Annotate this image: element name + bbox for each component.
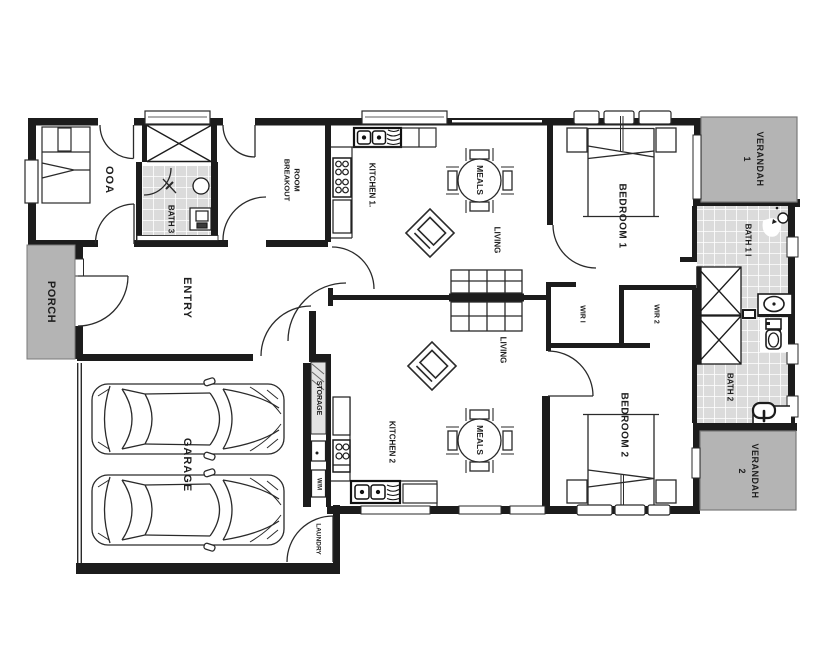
svg-text:2: 2 — [737, 468, 747, 473]
svg-text:BATH 3: BATH 3 — [167, 205, 176, 234]
svg-text:1: 1 — [742, 156, 752, 161]
svg-text:ENTRY: ENTRY — [181, 277, 193, 319]
svg-text:PORCH: PORCH — [45, 281, 57, 323]
svg-text:BREAKOUT: BREAKOUT — [283, 159, 292, 202]
svg-text:BEDROOM 1: BEDROOM 1 — [617, 183, 628, 248]
svg-text:WIR I: WIR I — [579, 305, 586, 323]
svg-text:LIVING: LIVING — [493, 227, 502, 254]
svg-text:BATH 2: BATH 2 — [726, 373, 735, 402]
svg-text:KITCHEN 2: KITCHEN 2 — [388, 421, 397, 464]
svg-text:GARAGE: GARAGE — [181, 438, 193, 492]
svg-text:LIVING: LIVING — [499, 337, 508, 364]
svg-text:KITCHEN 1.: KITCHEN 1. — [368, 163, 377, 207]
svg-text:BATH 1 I: BATH 1 I — [744, 224, 753, 257]
svg-text:VERANDAH: VERANDAH — [755, 131, 765, 186]
svg-text:VERANDAH: VERANDAH — [750, 443, 760, 498]
svg-text:WIR 2: WIR 2 — [653, 304, 660, 324]
svg-text:STORAGE: STORAGE — [315, 381, 322, 416]
svg-text:MEALS: MEALS — [475, 165, 485, 195]
svg-text:LAUNDRY: LAUNDRY — [315, 523, 322, 555]
svg-text:BEDROOM 2: BEDROOM 2 — [619, 392, 630, 457]
svg-text:ROOM: ROOM — [293, 168, 302, 191]
svg-text:OOA: OOA — [103, 166, 115, 194]
svg-text:W/M: W/M — [316, 478, 322, 490]
svg-text:MEALS: MEALS — [475, 425, 485, 455]
